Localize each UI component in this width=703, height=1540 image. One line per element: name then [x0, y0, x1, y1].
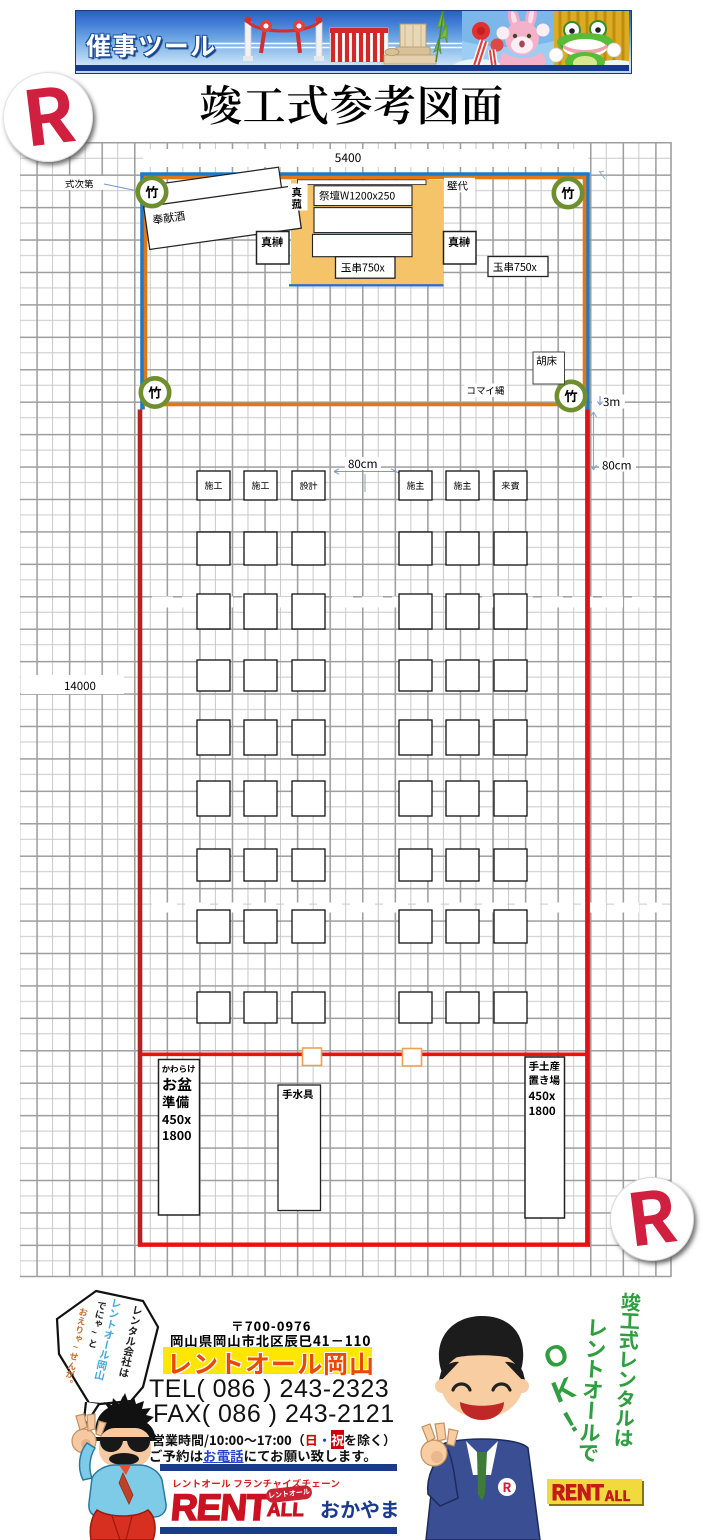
svg-text:3m: 3m	[603, 394, 620, 410]
svg-text:80cm: 80cm	[602, 458, 631, 474]
svg-text:玉串750x: 玉串750x	[493, 260, 537, 275]
svg-text:式次第: 式次第	[65, 177, 94, 191]
svg-text:5400: 5400	[335, 149, 362, 166]
svg-text:80cm: 80cm	[348, 456, 377, 472]
svg-text:RENT: RENT	[551, 1477, 604, 1507]
svg-text:450x: 450x	[529, 1088, 556, 1104]
svg-text:来賓: 来賓	[501, 479, 520, 492]
svg-text:1800: 1800	[529, 1103, 556, 1119]
svg-text:竹: 竹	[561, 182, 575, 202]
svg-text:竹: 竹	[564, 385, 578, 405]
svg-text:設計: 設計	[299, 479, 317, 492]
svg-text:1800: 1800	[162, 1125, 192, 1144]
svg-text:壁代: 壁代	[447, 179, 468, 194]
svg-text:真榊: 真榊	[261, 234, 283, 250]
svg-text:真榊: 真榊	[448, 234, 470, 250]
svg-text:14000: 14000	[64, 678, 96, 694]
svg-text:R: R	[503, 1477, 512, 1496]
svg-text:施工: 施工	[204, 479, 222, 492]
svg-text:施主: 施主	[406, 479, 424, 492]
svg-text:施主: 施主	[453, 479, 471, 492]
svg-text:ALL: ALL	[604, 1486, 630, 1506]
svg-text:祭壇W1200x250: 祭壇W1200x250	[319, 189, 395, 204]
svg-text:コマイ縄: コマイ縄	[467, 383, 506, 397]
svg-text:竹: 竹	[148, 382, 162, 402]
svg-text:手土産: 手土産	[529, 1059, 561, 1074]
svg-text:玉串750x: 玉串750x	[341, 261, 385, 276]
svg-text:手水具: 手水具	[282, 1087, 314, 1102]
svg-text:準備: 準備	[162, 1091, 189, 1111]
svg-text:菰: 菰	[292, 197, 303, 212]
svg-text:胡床: 胡床	[536, 354, 557, 369]
svg-text:竹: 竹	[145, 181, 159, 201]
svg-text:置き場: 置き場	[529, 1073, 561, 1088]
svg-text:施工: 施工	[251, 479, 269, 492]
